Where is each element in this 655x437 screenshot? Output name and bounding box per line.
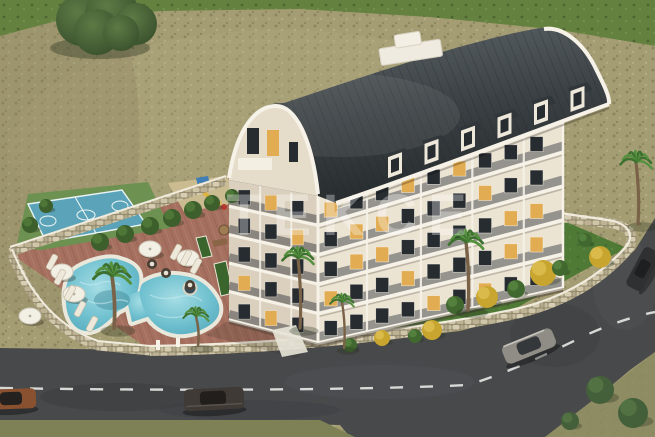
window-lit: [401, 271, 414, 286]
gable-window-lit: [267, 130, 279, 156]
umbrella-top: [29, 315, 32, 318]
window: [350, 314, 363, 329]
watermark-text: TEKCE: [226, 183, 478, 248]
roadside-bush-highlight: [588, 377, 603, 392]
window: [453, 257, 466, 272]
window: [479, 251, 492, 266]
palm-shadow: [337, 347, 359, 354]
tree-canopy: [103, 15, 139, 51]
window-lit: [350, 254, 363, 269]
topiary-bush-highlight: [23, 218, 32, 227]
large-tree: [50, 0, 157, 59]
bush-yellow-highlight: [532, 261, 546, 275]
topiary-bush-highlight: [164, 210, 174, 220]
bush-green-highlight: [553, 261, 562, 270]
bush-green-highlight: [409, 330, 417, 338]
architectural-render: TEKCE: [0, 0, 655, 437]
gable-window: [247, 128, 259, 154]
topiary-bush-highlight: [40, 200, 48, 208]
bush-yellow-highlight: [375, 331, 384, 340]
umbrella-top: [149, 248, 152, 251]
grass-verge: [0, 420, 355, 437]
window: [238, 304, 250, 319]
window: [401, 302, 414, 317]
gable-window: [289, 142, 298, 162]
egg-chair-cushion: [150, 262, 155, 267]
window-lit: [504, 244, 517, 259]
egg-chair-cushion: [188, 283, 193, 288]
bush-green-highlight: [508, 281, 518, 291]
window: [238, 247, 250, 262]
render-canvas: TEKCE: [0, 0, 655, 437]
roadside-bush-highlight: [620, 400, 637, 417]
window-lit: [530, 237, 543, 252]
palm-shadow: [289, 326, 318, 335]
window-lit: [238, 276, 250, 291]
bush-green-highlight: [579, 234, 587, 242]
topiary-bush-highlight: [185, 202, 195, 212]
window: [504, 178, 517, 193]
egg-chair-cushion: [164, 271, 169, 276]
window: [324, 261, 337, 276]
window: [265, 253, 277, 268]
topiary-bush-highlight: [205, 196, 214, 205]
window: [530, 137, 543, 152]
window: [376, 308, 389, 323]
window: [479, 218, 492, 233]
car-dark-sedan: [181, 386, 246, 417]
topiary-bush-highlight: [142, 218, 152, 228]
bush-yellow-highlight: [478, 287, 490, 299]
window: [376, 278, 389, 293]
bush-yellow-highlight: [591, 247, 603, 259]
window-lit: [376, 247, 389, 262]
window-lit: [479, 185, 492, 200]
window: [265, 282, 277, 297]
window-lit: [427, 296, 440, 311]
bush-green-highlight: [447, 297, 457, 307]
bush-yellow-highlight: [424, 321, 435, 332]
window: [350, 284, 363, 299]
car-orange: [0, 388, 39, 416]
roadside-bush-highlight: [562, 413, 572, 423]
gate-post: [156, 340, 160, 350]
window: [324, 321, 337, 336]
palm-shadow: [101, 325, 136, 336]
gable-balcony: [238, 158, 272, 170]
topiary-bush-highlight: [117, 226, 127, 236]
gate-post: [176, 337, 180, 347]
palm-shadow: [190, 345, 214, 353]
window: [530, 170, 543, 185]
window-lit: [504, 211, 517, 226]
window-lit: [530, 204, 543, 219]
window: [427, 264, 440, 279]
palm-shadow: [456, 308, 488, 318]
window-lit: [265, 311, 277, 326]
topiary-bush-highlight: [92, 234, 102, 244]
